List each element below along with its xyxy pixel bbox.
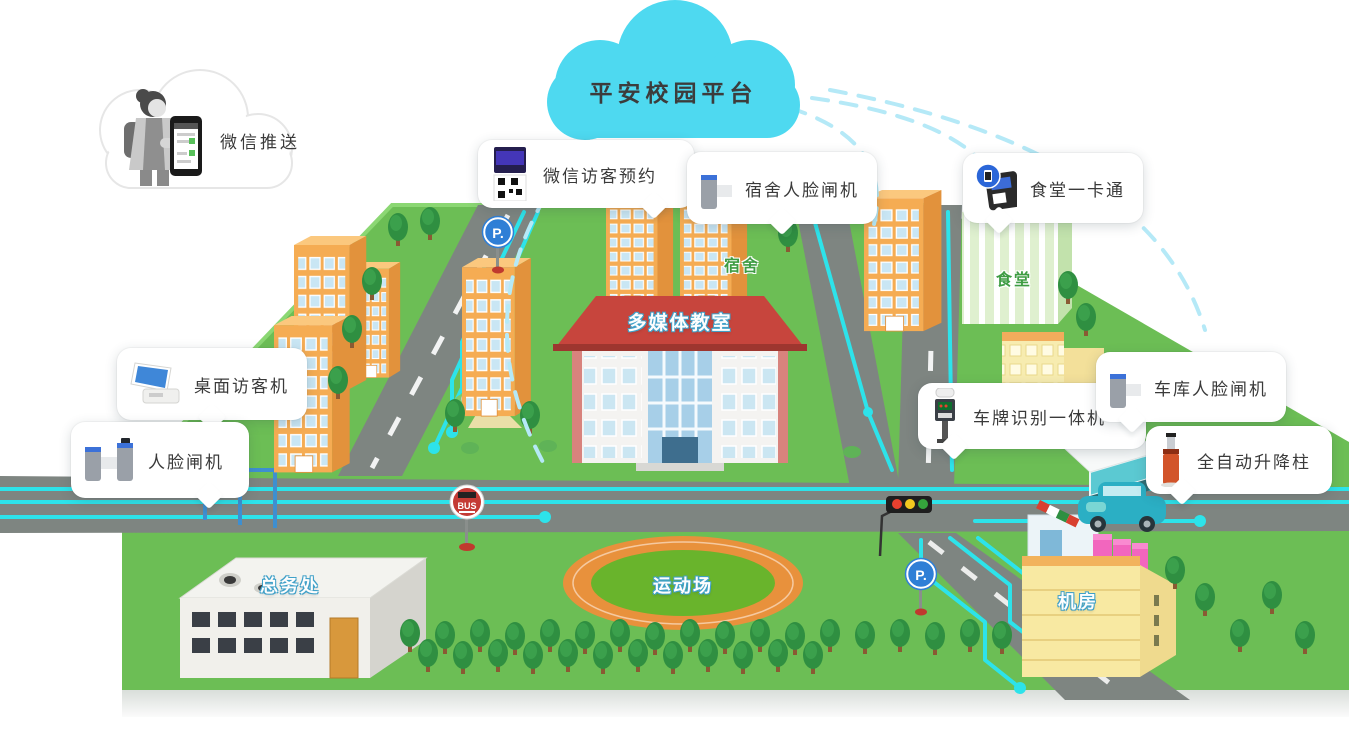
callout-visitor-appointment: 微信访客预约 (478, 140, 694, 208)
visitor-kiosk-icon (129, 361, 181, 407)
map-label-machine-room: 机房 (1042, 588, 1114, 614)
callout-garage-face-gate: 车库人脸闸机 (1096, 352, 1286, 422)
callout-label: 微信访客预约 (543, 162, 657, 187)
callout-face-gate: 人脸闸机 (71, 422, 249, 498)
map-label-sports-field: 运动场 (623, 572, 743, 598)
bus-sign-text: BUS (457, 501, 476, 511)
callout-label: 车库人脸闸机 (1154, 375, 1268, 400)
callout-desktop-visitor: 桌面访客机 (117, 348, 307, 420)
map-label-dorm: 宿舍 (712, 252, 772, 276)
callout-bollard: 全自动升降柱 (1146, 426, 1332, 494)
map-label-canteen: 食堂 (986, 266, 1042, 290)
parking-sign-text: P. (915, 567, 926, 583)
parking-sign-text: P. (492, 225, 503, 241)
callout-label: 桌面访客机 (194, 372, 289, 397)
campus-diagram: BUS P. P. (0, 0, 1349, 729)
wechat-push-label: 微信推送 (220, 128, 300, 153)
callout-label: 宿舍人脸闸机 (745, 176, 859, 201)
callout-label: 全自动升降柱 (1197, 448, 1311, 473)
callout-label: 食堂一卡通 (1030, 176, 1125, 201)
turnstile-icon (83, 437, 135, 483)
map-label-general-affairs: 总务处 (235, 572, 345, 598)
callout-label: 人脸闸机 (148, 448, 224, 473)
platform-title: 平安校园平台 (556, 74, 791, 108)
callout-dorm-face-gate: 宿舍人脸闸机 (687, 152, 877, 224)
phone-qr-icon (490, 147, 530, 201)
card-reader-icon (975, 163, 1017, 213)
map-label-multimedia-classroom: 多媒体教室 (595, 308, 765, 335)
platform-cloud (547, 0, 800, 140)
turnstile-icon (699, 165, 732, 211)
turnstile-icon (1108, 364, 1141, 410)
callout-label: 车牌识别一体机 (973, 404, 1106, 429)
callout-canteen-card: 食堂一卡通 (963, 153, 1143, 223)
